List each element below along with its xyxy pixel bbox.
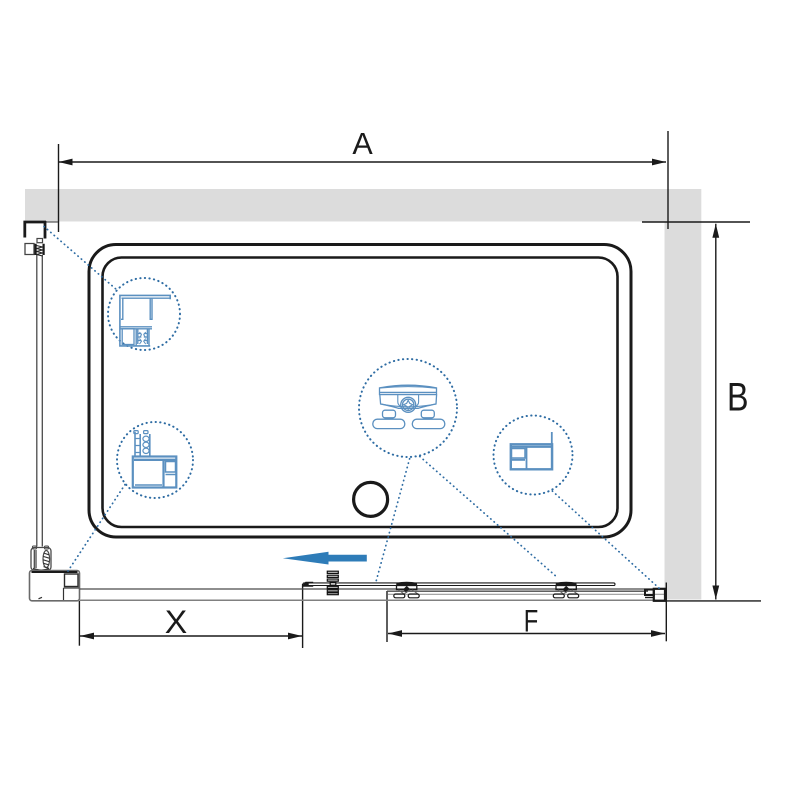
svg-text:X: X bbox=[165, 604, 188, 640]
svg-text:A: A bbox=[352, 127, 373, 161]
svg-text:F: F bbox=[524, 603, 539, 639]
svg-text:B: B bbox=[727, 376, 749, 420]
